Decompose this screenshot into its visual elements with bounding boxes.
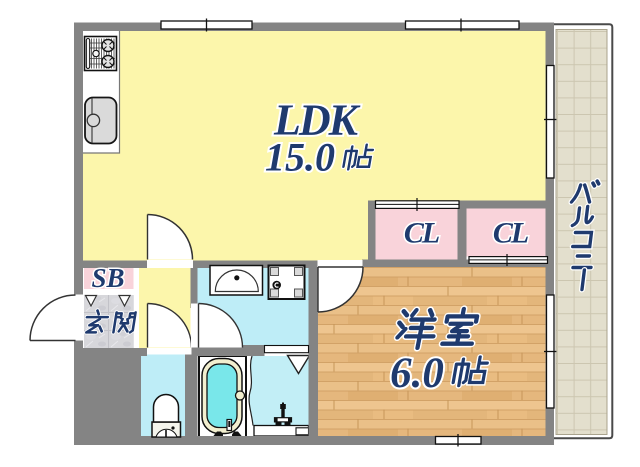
svg-text:CL: CL bbox=[493, 217, 528, 250]
svg-text:15.0: 15.0 bbox=[265, 135, 335, 180]
svg-text:6.0: 6.0 bbox=[390, 350, 444, 397]
svg-text:CL: CL bbox=[404, 217, 439, 250]
svg-text:SB: SB bbox=[91, 263, 124, 293]
